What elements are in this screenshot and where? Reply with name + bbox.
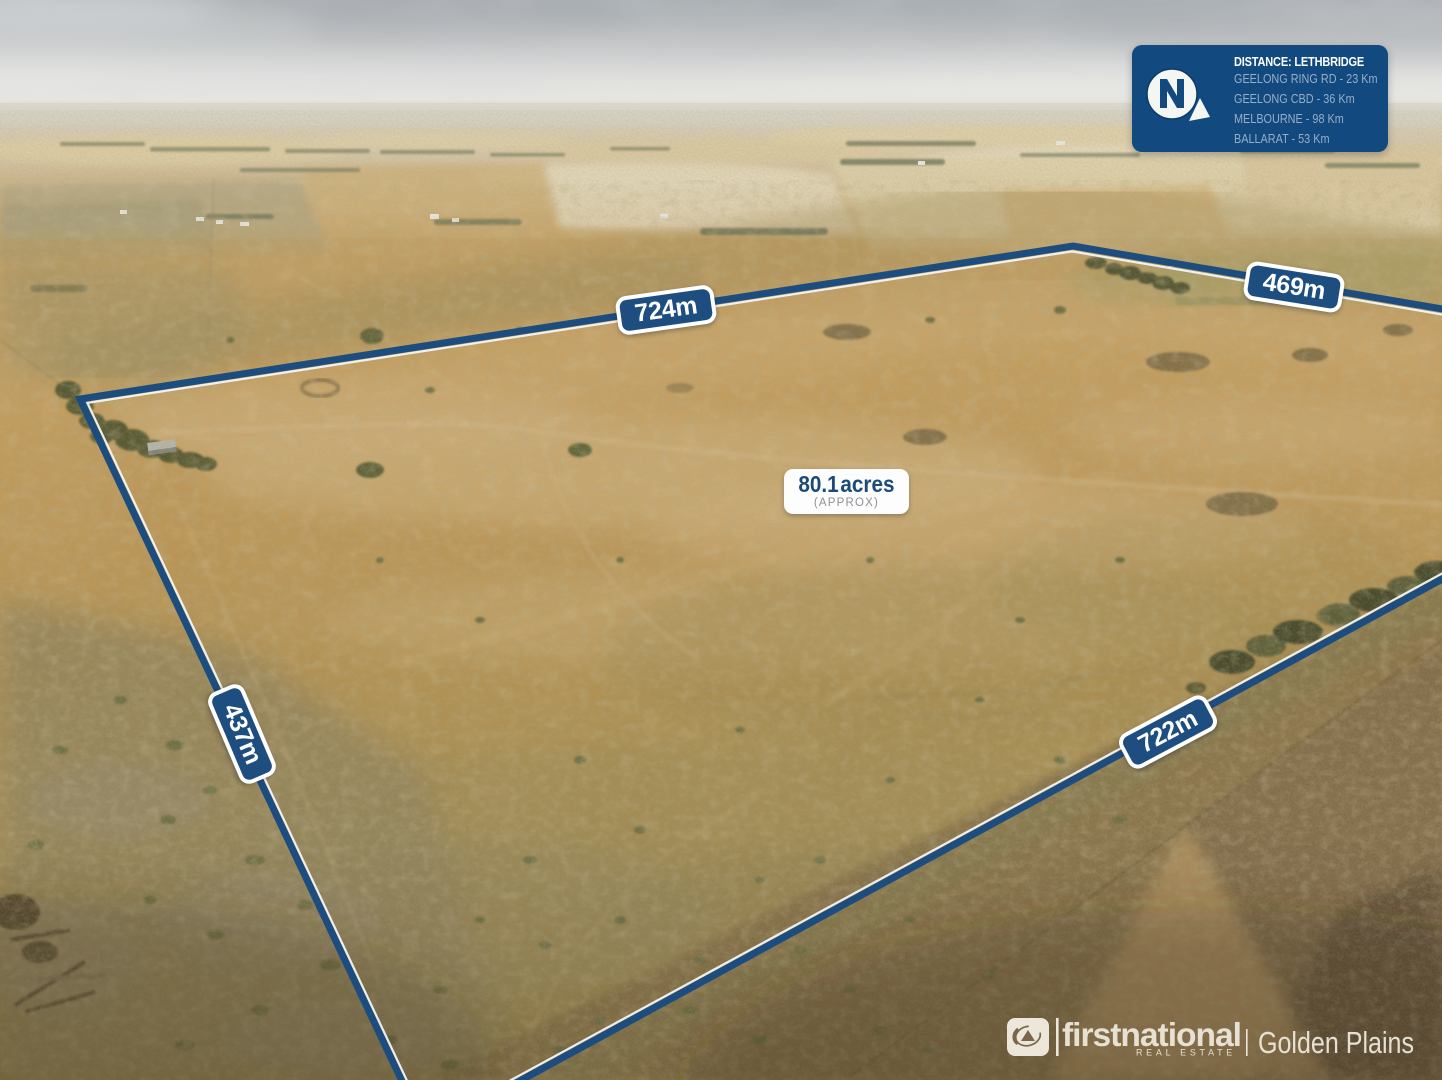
svg-text:Golden Plains: Golden Plains <box>1258 1025 1414 1060</box>
svg-text:REAL ESTATE: REAL ESTATE <box>1136 1048 1236 1059</box>
